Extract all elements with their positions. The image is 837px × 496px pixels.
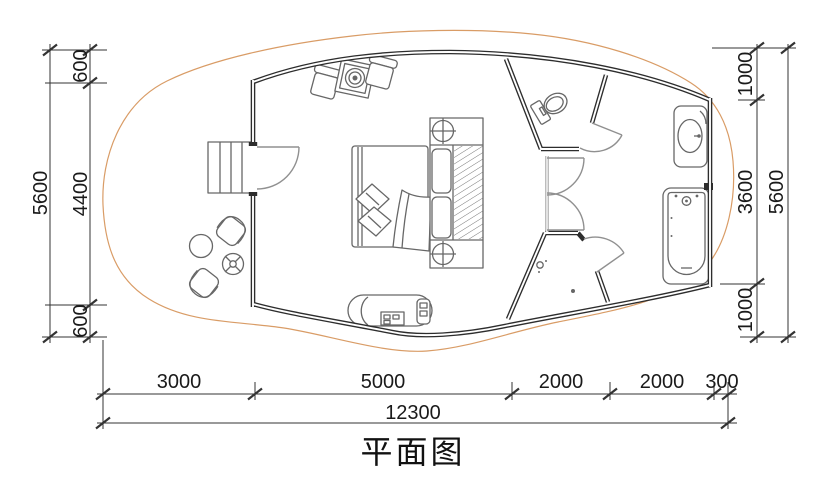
- wardrobe-hanging-clothes: [454, 146, 483, 239]
- dim-label-right-3600: 3600: [735, 170, 757, 215]
- wardrobe-nightstand-unit: [430, 118, 483, 268]
- dim-label-left-4400: 4400: [70, 172, 92, 217]
- dim-label-bottom-5000: 5000: [361, 371, 406, 393]
- dim-label-left-600-top: 600: [70, 49, 92, 82]
- outdoor-table: [190, 235, 213, 258]
- double-bed: [352, 146, 431, 251]
- dimension-right-outer: 5600: [766, 43, 795, 344]
- dimension-left-outer: 5600: [30, 44, 107, 343]
- shower-drain: [571, 289, 575, 293]
- washbasin-vanity: [674, 106, 707, 167]
- dim-label-right-1000-bottom: 1000: [735, 288, 757, 333]
- dim-label-right-total: 5600: [766, 170, 788, 215]
- dim-label-bottom-2000-b: 2000: [640, 371, 685, 393]
- dim-label-left-600-bottom: 600: [70, 304, 92, 337]
- dim-label-bottom-3000: 3000: [157, 371, 202, 393]
- dim-label-right-1000-top: 1000: [735, 52, 757, 97]
- entry-stairs: [208, 142, 257, 193]
- outdoor-chair-lower: [185, 265, 222, 302]
- dim-label-bottom-2000-a: 2000: [539, 371, 584, 393]
- outdoor-parasol-table: [223, 254, 244, 275]
- dimension-left-inner: 600 4400 600: [45, 44, 107, 343]
- bathtub: [663, 188, 709, 284]
- dim-label-left-total: 5600: [30, 171, 52, 216]
- floor-plan-page: 5600 600 4400 600 1000 3600 1000 5600: [0, 0, 837, 496]
- outdoor-chair-upper: [213, 212, 250, 249]
- dim-label-bottom-total: 12300: [385, 402, 441, 424]
- drawing-title: 平面图: [360, 434, 465, 470]
- chaise-lounge: [348, 295, 432, 326]
- dim-label-bottom-300: 300: [705, 371, 738, 393]
- dimension-bottom: 3000 5000 2000 2000 300 12300: [96, 340, 739, 429]
- floor-plan-drawing: 5600 600 4400 600 1000 3600 1000 5600: [0, 0, 837, 496]
